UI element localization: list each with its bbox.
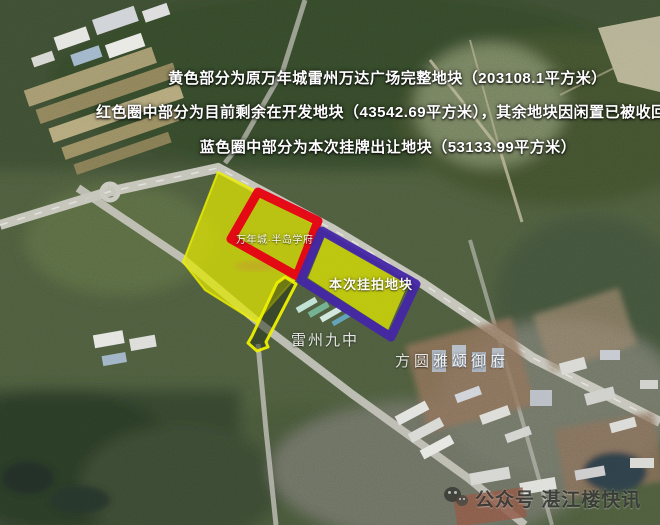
label-red-plot: 万年城·半岛学府 (236, 231, 313, 246)
label-blue-plot: 本次挂拍地块 (329, 274, 413, 293)
annotation-line-red: 红色圈中部分为目前剩余在开发地块（43542.69平方米），其余地块因闲置已被收… (96, 104, 660, 122)
watermark-text: 公众号 湛江楼快讯 (475, 485, 641, 512)
wechat-icon (444, 487, 470, 511)
label-estate: 方圆雅颂御府 (395, 350, 509, 371)
label-school: 雷州九中 (291, 329, 359, 350)
watermark: 公众号 湛江楼快讯 (444, 485, 641, 512)
satellite-map: 黄色部分为原万年城雷州万达广场完整地块（203108.1平方米） 红色圈中部分为… (0, 0, 660, 525)
annotation-line-blue: 蓝色圈中部分为本次挂牌出让地块（53133.99平方米） (116, 139, 660, 157)
annotation-line-yellow: 黄色部分为原万年城雷州万达广场完整地块（203108.1平方米） (115, 70, 660, 88)
